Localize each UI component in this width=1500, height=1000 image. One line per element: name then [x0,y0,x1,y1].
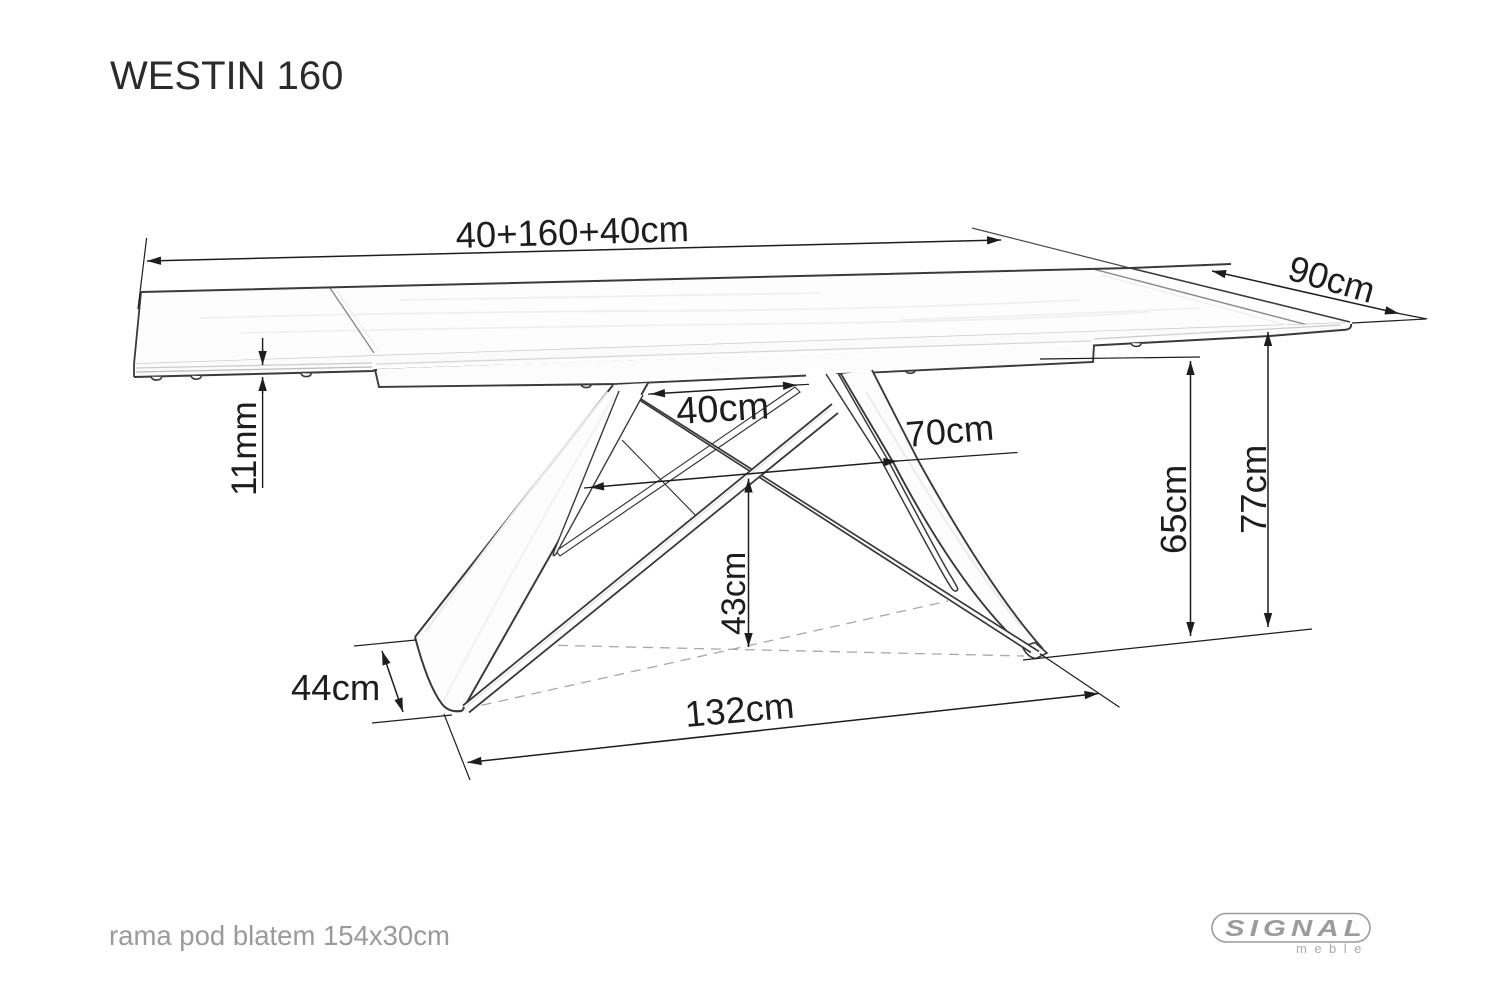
svg-text:40cm: 40cm [675,385,770,433]
svg-text:90cm: 90cm [1284,247,1380,311]
svg-text:43cm: 43cm [715,552,753,635]
svg-text:65cm: 65cm [1153,465,1194,554]
svg-text:rama pod blatem 154x30cm: rama pod blatem 154x30cm [109,920,450,951]
svg-text:meble: meble [1296,941,1369,956]
svg-text:40+160+40cm: 40+160+40cm [455,208,690,256]
svg-text:SIGNAL: SIGNAL [1225,915,1367,941]
svg-text:70cm: 70cm [904,406,995,455]
svg-text:77cm: 77cm [1233,445,1274,534]
svg-text:132cm: 132cm [683,685,796,735]
svg-text:11mm: 11mm [225,401,264,496]
svg-text:44cm: 44cm [291,667,380,708]
svg-text:WESTIN 160: WESTIN 160 [110,54,343,98]
